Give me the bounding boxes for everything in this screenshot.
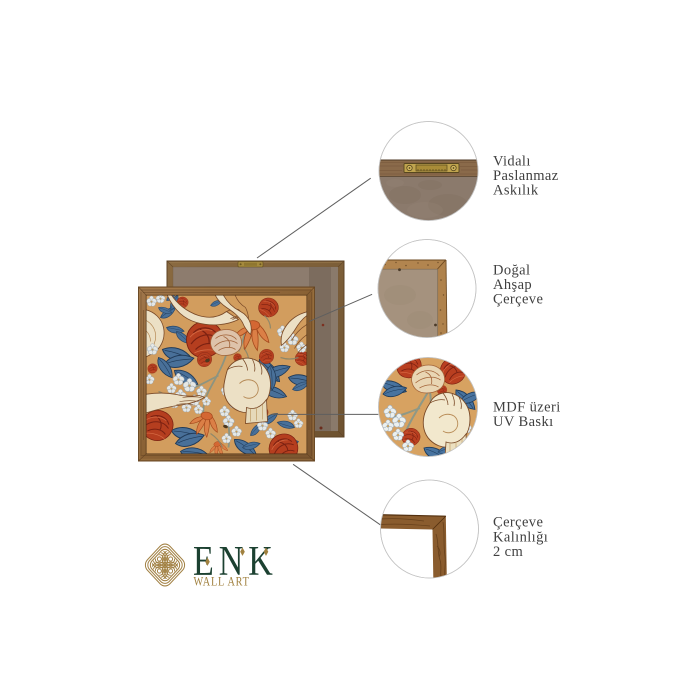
svg-text:Çerçeve: Çerçeve — [493, 515, 543, 531]
svg-text:UV Baskı: UV Baskı — [493, 414, 554, 430]
svg-text:Çerçeve: Çerçeve — [493, 292, 543, 308]
svg-text:2 cm: 2 cm — [493, 544, 524, 560]
svg-text:Askılık: Askılık — [493, 183, 539, 199]
svg-text:WALL ART: WALL ART — [194, 576, 250, 589]
